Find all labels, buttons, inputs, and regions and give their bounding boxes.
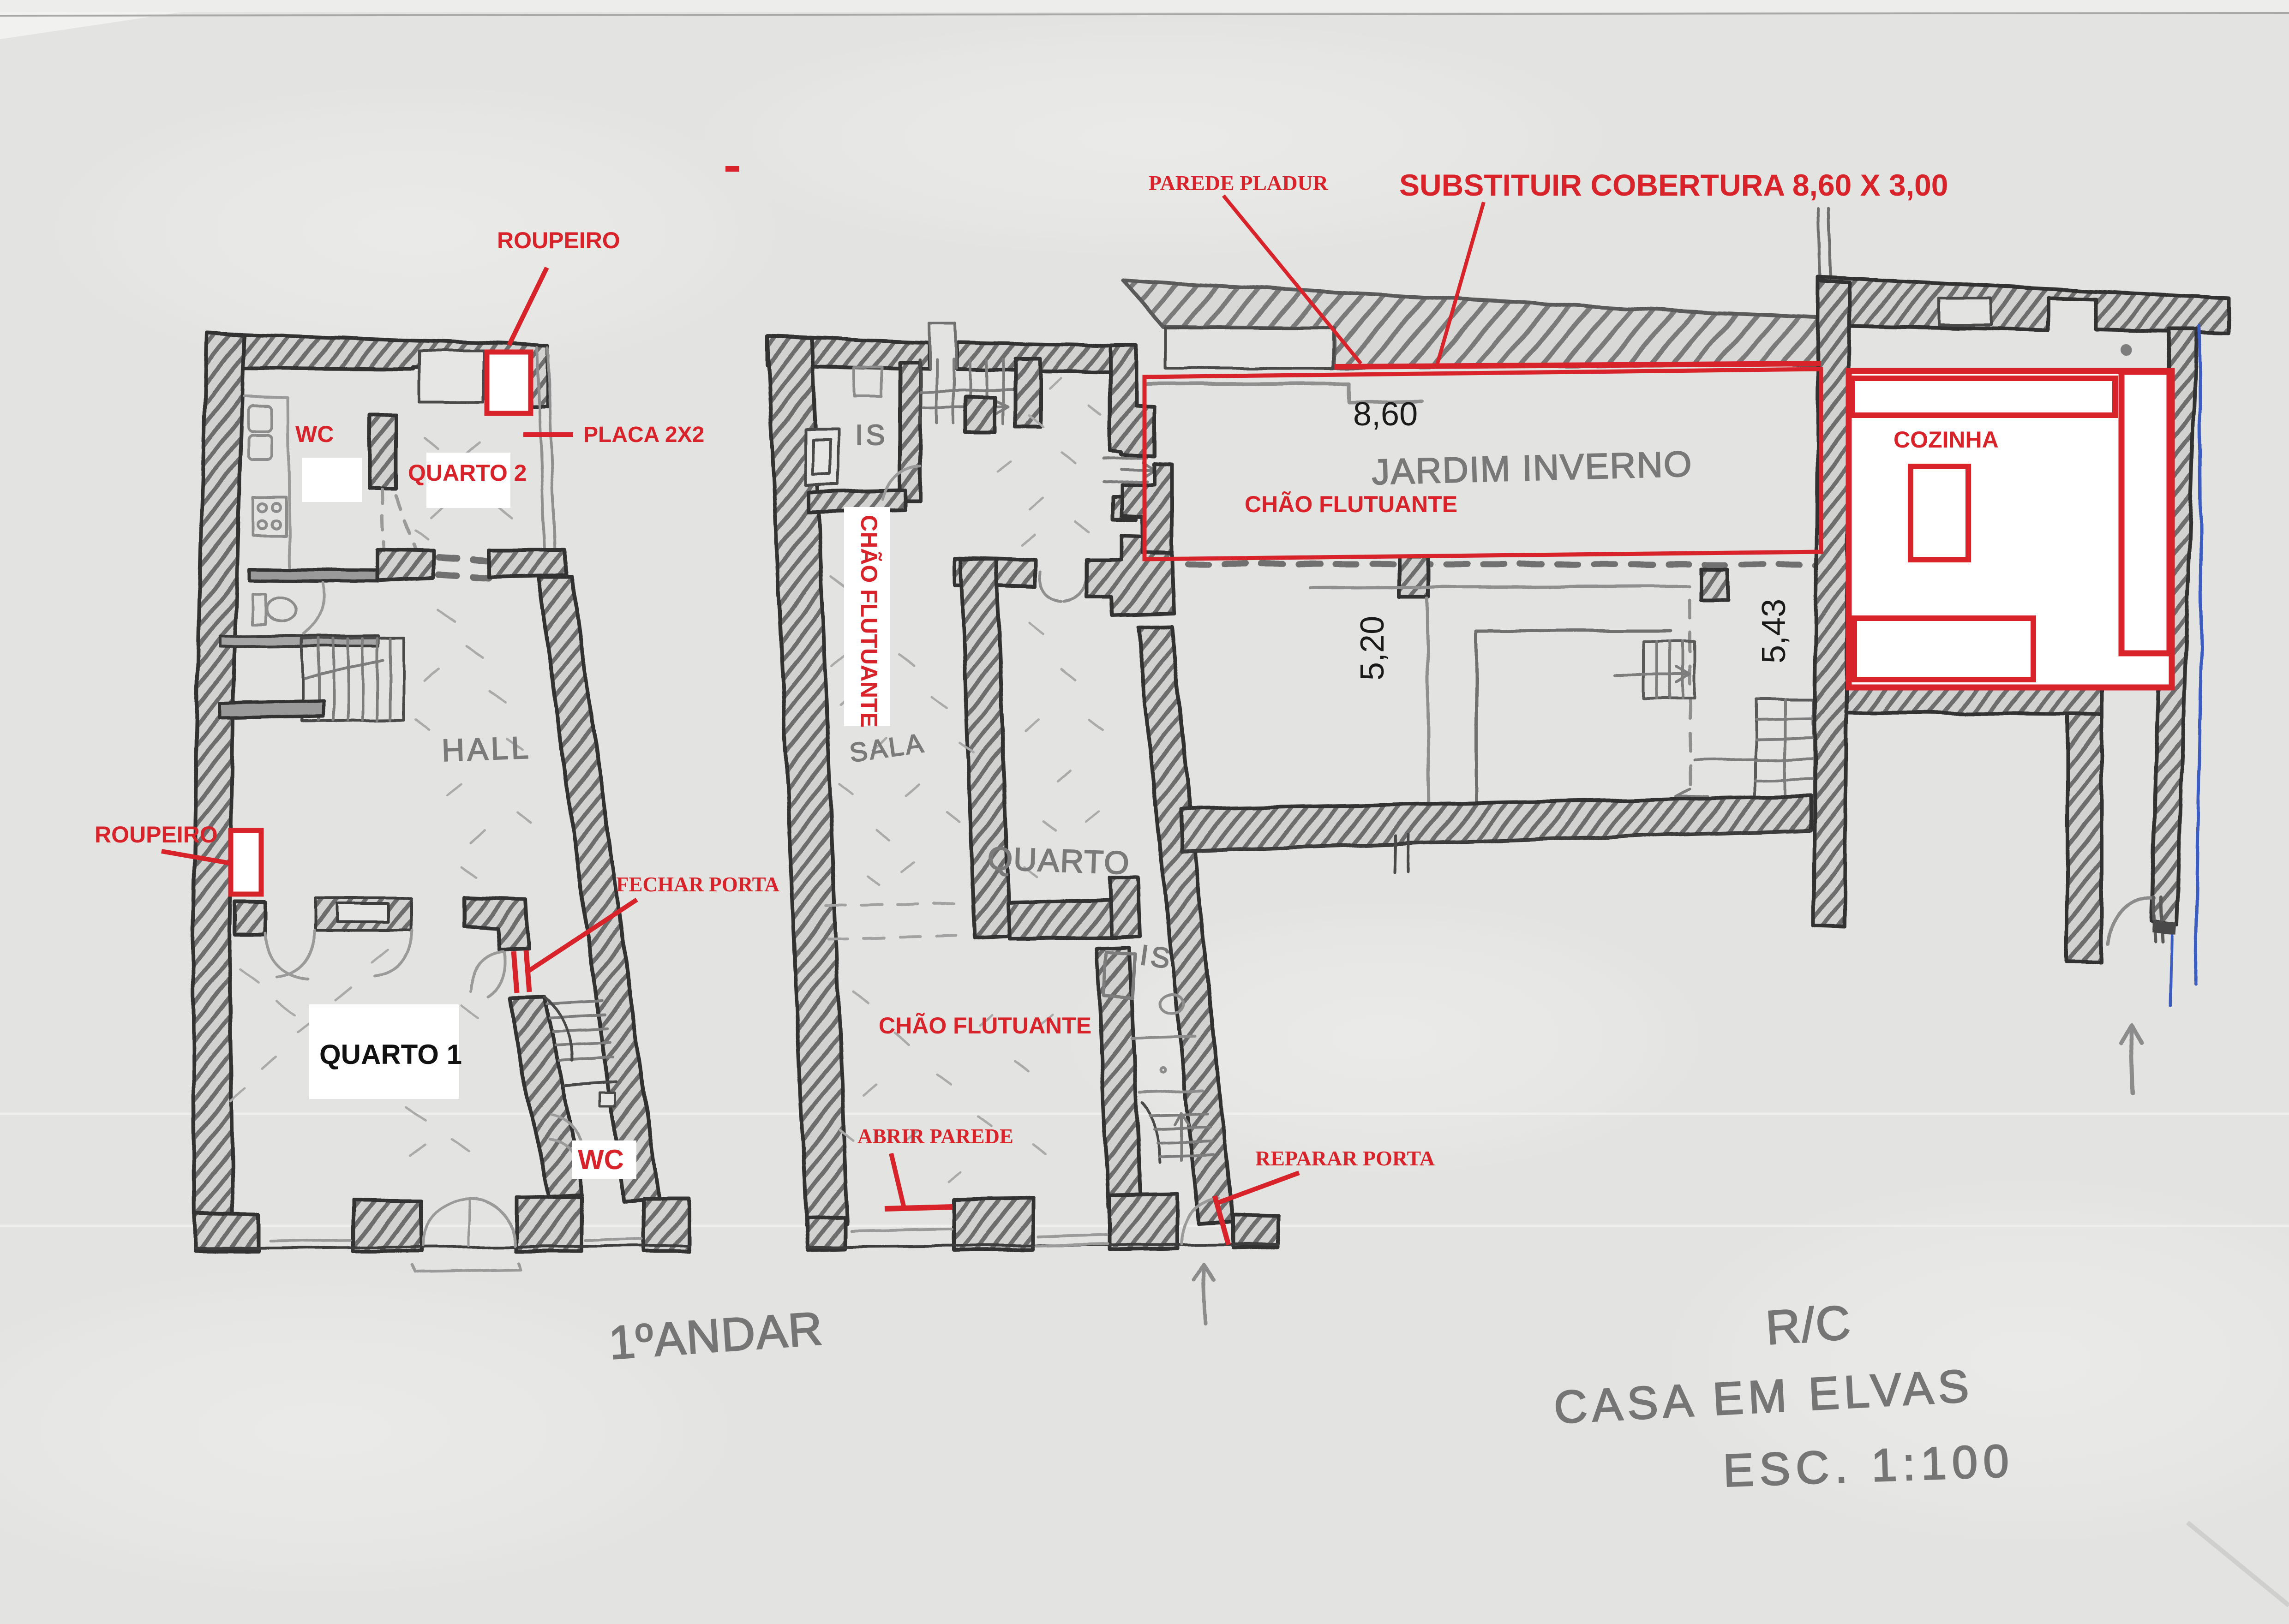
svg-text:CHÃO FLUTUANTE: CHÃO FLUTUANTE bbox=[1245, 491, 1457, 517]
svg-text:FECHAR PORTA: FECHAR PORTA bbox=[616, 873, 779, 896]
svg-text:QUARTO 2: QUARTO 2 bbox=[408, 460, 527, 486]
svg-text:QUARTO 1: QUARTO 1 bbox=[319, 1039, 462, 1070]
svg-text:ESC. 1:100: ESC. 1:100 bbox=[1722, 1435, 2015, 1497]
svg-text:5,43: 5,43 bbox=[1756, 599, 1792, 663]
svg-text:ROUPEIRO: ROUPEIRO bbox=[95, 822, 218, 848]
svg-text:CHÃO FLUTUANTE: CHÃO FLUTUANTE bbox=[856, 515, 882, 728]
svg-text:REPARAR PORTA: REPARAR PORTA bbox=[1255, 1146, 1435, 1170]
svg-text:QUARTO: QUARTO bbox=[987, 840, 1130, 881]
svg-text:5,20: 5,20 bbox=[1354, 616, 1391, 681]
svg-text:ABRIR PAREDE: ABRIR PAREDE bbox=[857, 1125, 1013, 1148]
svg-text:ROUPEIRO: ROUPEIRO bbox=[497, 227, 620, 253]
svg-text:CHÃO FLUTUANTE: CHÃO FLUTUANTE bbox=[879, 1013, 1091, 1039]
svg-text:HALL: HALL bbox=[441, 730, 532, 768]
svg-text:WC: WC bbox=[295, 421, 334, 447]
svg-text:IS: IS bbox=[1138, 939, 1175, 975]
svg-text:JARDIM INVERNO: JARDIM INVERNO bbox=[1371, 443, 1693, 492]
svg-text:8,60: 8,60 bbox=[1353, 396, 1418, 433]
svg-text:IS: IS bbox=[855, 419, 888, 451]
svg-text:WC: WC bbox=[578, 1144, 624, 1175]
svg-text:SUBSTITUIR COBERTURA 8,60 X 3,: SUBSTITUIR COBERTURA 8,60 X 3,00 bbox=[1399, 168, 1948, 202]
svg-text:PAREDE PLADUR: PAREDE PLADUR bbox=[1149, 171, 1329, 195]
svg-text:COZINHA: COZINHA bbox=[1894, 427, 1999, 453]
svg-text:PLACA 2X2: PLACA 2X2 bbox=[583, 423, 704, 447]
svg-text:R/C: R/C bbox=[1764, 1296, 1853, 1355]
